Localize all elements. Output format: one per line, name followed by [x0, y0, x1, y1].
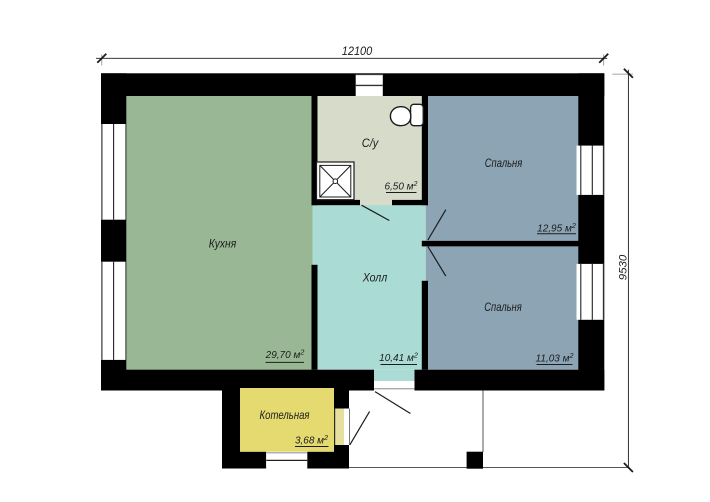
- svg-text:29,70 м2: 29,70 м2: [265, 348, 305, 361]
- svg-text:10,41 м2: 10,41 м2: [379, 351, 418, 364]
- svg-text:3,68 м2: 3,68 м2: [295, 433, 328, 446]
- svg-text:Спальня: Спальня: [484, 301, 522, 314]
- svg-text:12,95 м2: 12,95 м2: [537, 221, 576, 234]
- svg-text:11,03 м2: 11,03 м2: [536, 351, 574, 364]
- svg-text:С/у: С/у: [362, 136, 379, 150]
- svg-text:12100: 12100: [342, 44, 373, 58]
- svg-text:9530: 9530: [618, 254, 630, 280]
- svg-text:Спальня: Спальня: [485, 157, 523, 170]
- svg-text:Котельная: Котельная: [260, 409, 310, 422]
- svg-text:Кухня: Кухня: [209, 238, 237, 251]
- svg-text:Холл: Холл: [362, 272, 388, 285]
- svg-text:6,50 м2: 6,50 м2: [384, 179, 417, 192]
